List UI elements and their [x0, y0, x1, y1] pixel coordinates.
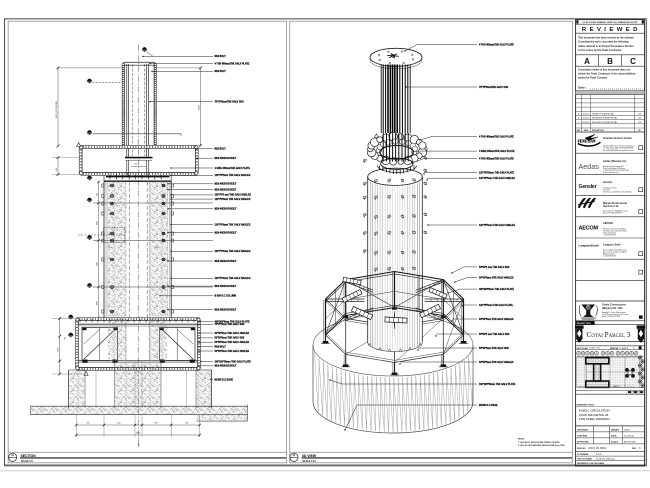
svg-text:B: B — [607, 57, 613, 66]
svg-text:50*50*5mm THK GALV ANGLES: 50*50*5mm THK GALV ANGLES — [479, 318, 514, 321]
svg-text:09-06-10: 09-06-10 — [583, 122, 590, 124]
svg-text:DATE: DATE — [611, 435, 617, 438]
svg-text:120*75*50mm THK GALV PLATE: 120*75*50mm THK GALV PLATE — [479, 171, 514, 174]
svg-text:M16 BOLT: M16 BOLT — [215, 56, 227, 58]
svg-text:120*75*5mm THK GALV ANGLES: 120*75*5mm THK GALV ANGLES — [479, 177, 515, 180]
svg-text:RE-ISSUED FOR APPROVAL: RE-ISSUED FOR APPROVAL — [592, 121, 617, 124]
svg-text:XD NUMBER: XD NUMBER — [577, 454, 589, 456]
svg-text:50*50*5 mm THK GALV SHS: 50*50*5 mm THK GALV SHS — [479, 266, 510, 269]
svg-text:1000: 1000 — [58, 348, 60, 352]
svg-text:Langdon Seah: Langdon Seah — [603, 242, 621, 246]
svg-text:RE-ISSUED FOR APPROVAL: RE-ISSUED FOR APPROVAL — [592, 117, 617, 120]
svg-text:M16 ANCHOR BOLT: M16 ANCHOR BOLT — [215, 285, 237, 288]
svg-text:R E V I E W E D: R E V I E W E D — [582, 27, 638, 33]
svg-text:DRAWING TITLE:: DRAWING TITLE: — [577, 403, 595, 406]
svg-text:Cotai Parcel 3: Cotai Parcel 3 — [587, 331, 631, 339]
svg-text:5.4 for action by the Tra: 5.4 for action by the Trade Contractor. — [578, 49, 622, 52]
svg-text:TW: TW — [638, 118, 641, 120]
svg-text:3-SUS: 3-SUS — [596, 454, 602, 456]
svg-text:PARCEL 1, LOT 2: PARCEL 1, LOT 2 — [610, 347, 629, 350]
svg-text:2400 (TYP LEVEL): 2400 (TYP LEVEL) — [56, 101, 58, 118]
svg-text:status referred to in Pro: status referred to in Project Procedures… — [578, 45, 634, 48]
svg-text:Macau Tel: (853) 2878 9915: Macau Tel: (853) 2878 9915 — [603, 213, 622, 215]
svg-text:C: C — [630, 57, 636, 66]
svg-text:50*50*5 mm THK GALV SHS: 50*50*5 mm THK GALV SHS — [479, 333, 510, 336]
svg-text:120*75*5mm THK GALV ANGLES: 120*75*5mm THK GALV ANGLES — [479, 224, 515, 227]
svg-text:120*75*5mm THK GALV PLATE: 120*75*5mm THK GALV PLATE — [479, 304, 513, 307]
svg-text:Venetian Orient Limited: Venetian Orient Limited — [603, 136, 632, 140]
svg-text:(Macau) CO. LTD.: (Macau) CO. LTD. — [602, 306, 623, 310]
svg-text:M16 BOLT: M16 BOLT — [215, 71, 227, 73]
svg-text:Macau T (853) 2875 1888: Macau T (853) 2875 1888 — [602, 316, 620, 318]
svg-text:SCALE: SCALE — [611, 441, 619, 444]
svg-text:DO NOT SCALE DRAWING, VERIFY A: DO NOT SCALE DRAWING, VERIFY ALL DIMENSI… — [583, 21, 639, 24]
svg-text:2. ALL FILLET WELDED SHOULD BE: 2. ALL FILLET WELDED SHOULD BE 5mm THK. — [518, 444, 566, 447]
svg-text:(TYP): (TYP) — [155, 248, 160, 250]
svg-text:150 x: 150 x — [134, 164, 138, 166]
svg-text:864: 864 — [155, 422, 158, 424]
svg-text:800: 800 — [87, 422, 90, 424]
svg-text:M16 ANCHOR BOLT: M16 ANCHOR BOLT — [215, 183, 237, 186]
svg-text:Gensler: Gensler — [579, 184, 597, 190]
svg-text:4 THK 450mmTHK GALV PLATE: 4 THK 450mmTHK GALV PLATE — [215, 62, 250, 65]
svg-text:2864: 2864 — [136, 432, 140, 434]
svg-text:under the Trade Contract.: under the Trade Contract. — [578, 77, 608, 80]
svg-text:800: 800 — [186, 422, 189, 424]
svg-text:M16 ANCHOR BOLT: M16 ANCHOR BOLT — [215, 231, 237, 234]
svg-text:M16 BOLT: M16 BOLT — [215, 149, 227, 151]
svg-text:50*50*5mm THK GALV ANGLES: 50*50*5mm THK GALV ANGLES — [215, 332, 250, 335]
svg-text:AS SHOWN: AS SHOWN — [624, 441, 636, 444]
svg-text:A: A — [584, 57, 590, 66]
svg-text:ISSUED FOR APPROVAL: ISSUED FOR APPROVAL — [592, 113, 614, 116]
svg-text:Langdon&Seah: Langdon&Seah — [579, 243, 600, 247]
svg-text:Ø2300 R.C BASE: Ø2300 R.C BASE — [479, 404, 498, 407]
svg-text:SCALE 1:10: SCALE 1:10 — [303, 460, 317, 463]
svg-text:(TYP): (TYP) — [108, 248, 113, 250]
svg-text:M16 ANCHOR BOLT: M16 ANCHOR BOLT — [215, 365, 237, 368]
svg-text:75*75*5mm THK GALV SHS: 75*75*5mm THK GALV SHS — [215, 323, 245, 326]
svg-text:750: 750 — [65, 337, 67, 340]
svg-text:KEY PLAN: KEY PLAN — [577, 347, 588, 350]
svg-text:CAD FILE NAME: CAD FILE NAME — [577, 458, 593, 461]
svg-text:Consultant(s) and is acco: Consultant(s) and is accorded the follow… — [578, 41, 629, 44]
svg-text:120*75*6 mm THK GALV ANGLES: 120*75*6 mm THK GALV ANGLES — [215, 194, 252, 197]
svg-text:50*50*5mm THK GALV ANGLES: 50*50*5mm THK GALV ANGLES — [479, 277, 514, 280]
svg-text:T +853 2883 3293: T +853 2883 3293 — [603, 256, 616, 258]
svg-text:relieve the Trade Contracto: relieve the Trade Contractor of its resp… — [578, 73, 636, 76]
svg-text:M16 ANCHOR BOLT: M16 ANCHOR BOLT — [215, 309, 237, 312]
svg-text:Aedas: Aedas — [579, 162, 600, 171]
svg-text:4 THK 450mmTHK GALV PLATE: 4 THK 450mmTHK GALV PLATE — [479, 135, 514, 138]
svg-text:500: 500 — [96, 193, 98, 196]
svg-text:Gensler: Gensler — [603, 180, 613, 184]
svg-text:100*100*50mm THK GALV PLATE: 100*100*50mm THK GALV PLATE — [479, 383, 516, 386]
svg-text:M16 BOLT: M16 BOLT — [215, 347, 227, 349]
svg-text:50*50*5mm THK GALV ANGLES: 50*50*5mm THK GALV ANGLES — [215, 341, 250, 344]
svg-text:Consultant review of this: Consultant review of this document does … — [578, 69, 630, 72]
svg-text:DRAWN: DRAWN — [611, 429, 619, 432]
svg-text:400*200*8mm THK GALV PLATE: 400*200*8mm THK GALV PLATE — [479, 288, 514, 291]
svg-text:M16 ANCHOR BOLT: M16 ANCHOR BOLT — [215, 189, 237, 192]
svg-text:75*75*5mmTHK GALV SHS: 75*75*5mmTHK GALV SHS — [215, 101, 245, 104]
svg-text:VENETIAN: VENETIAN — [578, 140, 596, 144]
svg-text:50*50*5mm THK GALV ANGLES: 50*50*5mm THK GALV ANGLES — [215, 350, 250, 353]
svg-text:120*75*6mm THK GALV ANGLES: 120*75*6mm THK GALV ANGLES — [215, 223, 251, 226]
svg-text:T +853 2833 1022 F +853 2833: T +853 2833 1022 F +853 2833 1028 — [603, 170, 629, 172]
svg-text:1000: 1000 — [96, 301, 98, 305]
svg-text:120*75*6mm THK GALV ANGLES: 120*75*6mm THK GALV ANGLES — [215, 198, 251, 201]
svg-text:AECOM: AECOM — [579, 226, 599, 232]
svg-text:Aedas (Macau) Ltd.: Aedas (Macau) Ltd. — [603, 159, 627, 163]
svg-text:120*75*6mm THK GALV ANGLES: 120*75*6mm THK GALV ANGLES — [215, 277, 251, 280]
svg-text:FOR STEEL DRAWING: FOR STEEL DRAWING — [579, 417, 610, 421]
svg-text:Services Ltd.: Services Ltd. — [603, 204, 619, 208]
svg-text:40: 40 — [138, 445, 140, 447]
svg-text:This document has been rev: This document has been revised by the re… — [578, 37, 634, 40]
svg-text:4 SIDE 450mmTHK GALV PLATE: 4 SIDE 450mmTHK GALV PLATE — [479, 150, 515, 153]
svg-text:M16 ANCHOR BOLT: M16 ANCHOR BOLT — [215, 157, 237, 160]
svg-text:TW: TW — [638, 114, 641, 116]
svg-text:Date :: Date : — [578, 86, 587, 90]
svg-text:CHECKED: CHECKED — [577, 436, 588, 438]
svg-text:05-05-10: 05-05-10 — [583, 118, 590, 120]
svg-text:4 THK 450mmTHK GALV PLATE: 4 THK 450mmTHK GALV PLATE — [479, 44, 514, 47]
svg-text:14-JUN-10: 14-JUN-10 — [624, 436, 635, 438]
svg-text:4 THK 450mmTHK GALV PLATE: 4 THK 450mmTHK GALV PLATE — [479, 158, 514, 161]
svg-text:Yaoke Construction: Yaoke Construction — [602, 302, 626, 306]
svg-text:SCALE 1:5: SCALE 1:5 — [21, 460, 33, 463]
svg-text:1500: 1500 — [96, 262, 98, 266]
svg-text:DESIGNED: DESIGNED — [577, 430, 588, 432]
svg-text:02-03-10: 02-03-10 — [583, 114, 590, 116]
svg-text:4 SIDE 450mmTHK GALV PLATE: 4 SIDE 450mmTHK GALV PLATE — [215, 167, 251, 170]
svg-text:75*75*5mmTHK GALV SHS: 75*75*5mmTHK GALV SHS — [479, 86, 509, 89]
svg-text:Ø2300 R.C BASE: Ø2300 R.C BASE — [215, 378, 234, 381]
svg-text:50*50*5mm THK GALV SHS: 50*50*5mm THK GALV SHS — [215, 337, 245, 340]
svg-text:50*50*5mm THK GALV ANGLES: 50*50*5mm THK GALV ANGLES — [479, 361, 514, 364]
svg-text:E macau@aedas.com: E macau@aedas.com — [603, 172, 619, 174]
svg-text:500: 500 — [56, 168, 58, 171]
svg-text:AECOM: AECOM — [603, 221, 612, 225]
svg-text:120*75*5mm THK GALV ANGLES: 120*75*5mm THK GALV ANGLES — [215, 174, 251, 177]
svg-text:SECTION: SECTION — [21, 454, 37, 458]
svg-text:DWG NO: DWG NO — [577, 448, 586, 450]
svg-text:REFERENCE CAD FILE NAME: REFERENCE CAD FILE NAME — [577, 462, 605, 465]
svg-text:3D VIEW: 3D VIEW — [302, 454, 317, 458]
svg-text:APPROVED: APPROVED — [577, 441, 589, 444]
svg-text:M16 ANCHOR BOLT: M16 ANCHOR BOLT — [215, 208, 237, 211]
svg-text:M16 ANCHOR BOLT: M16 ANCHOR BOLT — [215, 260, 237, 263]
svg-text:LWKD: LWKD — [624, 430, 630, 432]
svg-text:T +852 3922 9000: T +852 3922 9000 — [603, 235, 616, 237]
svg-text:120*75*6mm THK GALV ANGLES: 120*75*6mm THK GALV ANGLES — [215, 250, 251, 253]
svg-text:NOTE:: NOTE: — [518, 439, 525, 441]
svg-text:50*50*5mm THK GALV SHS: 50*50*5mm THK GALV SHS — [479, 347, 509, 350]
svg-text:China Law Building 16/F, Macau: China Law Building 16/F, Macau — [603, 168, 625, 170]
svg-text:1500: 1500 — [96, 221, 98, 225]
svg-text:864: 864 — [118, 422, 121, 424]
svg-text:TW: TW — [638, 122, 641, 124]
svg-text:1. ALL BOLT SHOULD BE FIXING O: 1. ALL BOLT SHOULD BE FIXING ON SITE. — [518, 441, 561, 444]
svg-text:3-SUS_FD_B484: 3-SUS_FD_B484 — [588, 448, 606, 450]
svg-text:Ø 180 R.C COLUMN: Ø 180 R.C COLUMN — [215, 296, 237, 298]
svg-text:3-SUS_FD_B484.dwg: 3-SUS_FD_B484.dwg — [596, 459, 615, 461]
svg-text:400*200*8mm THK GALV PLATE: 400*200*8mm THK GALV PLATE — [215, 320, 250, 323]
svg-text:(TYP): (TYP) — [78, 235, 83, 237]
svg-text:REV: REV — [632, 448, 637, 450]
svg-text:100*100*50mm THK GALV PLATE: 100*100*50mm THK GALV PLATE — [215, 360, 252, 363]
